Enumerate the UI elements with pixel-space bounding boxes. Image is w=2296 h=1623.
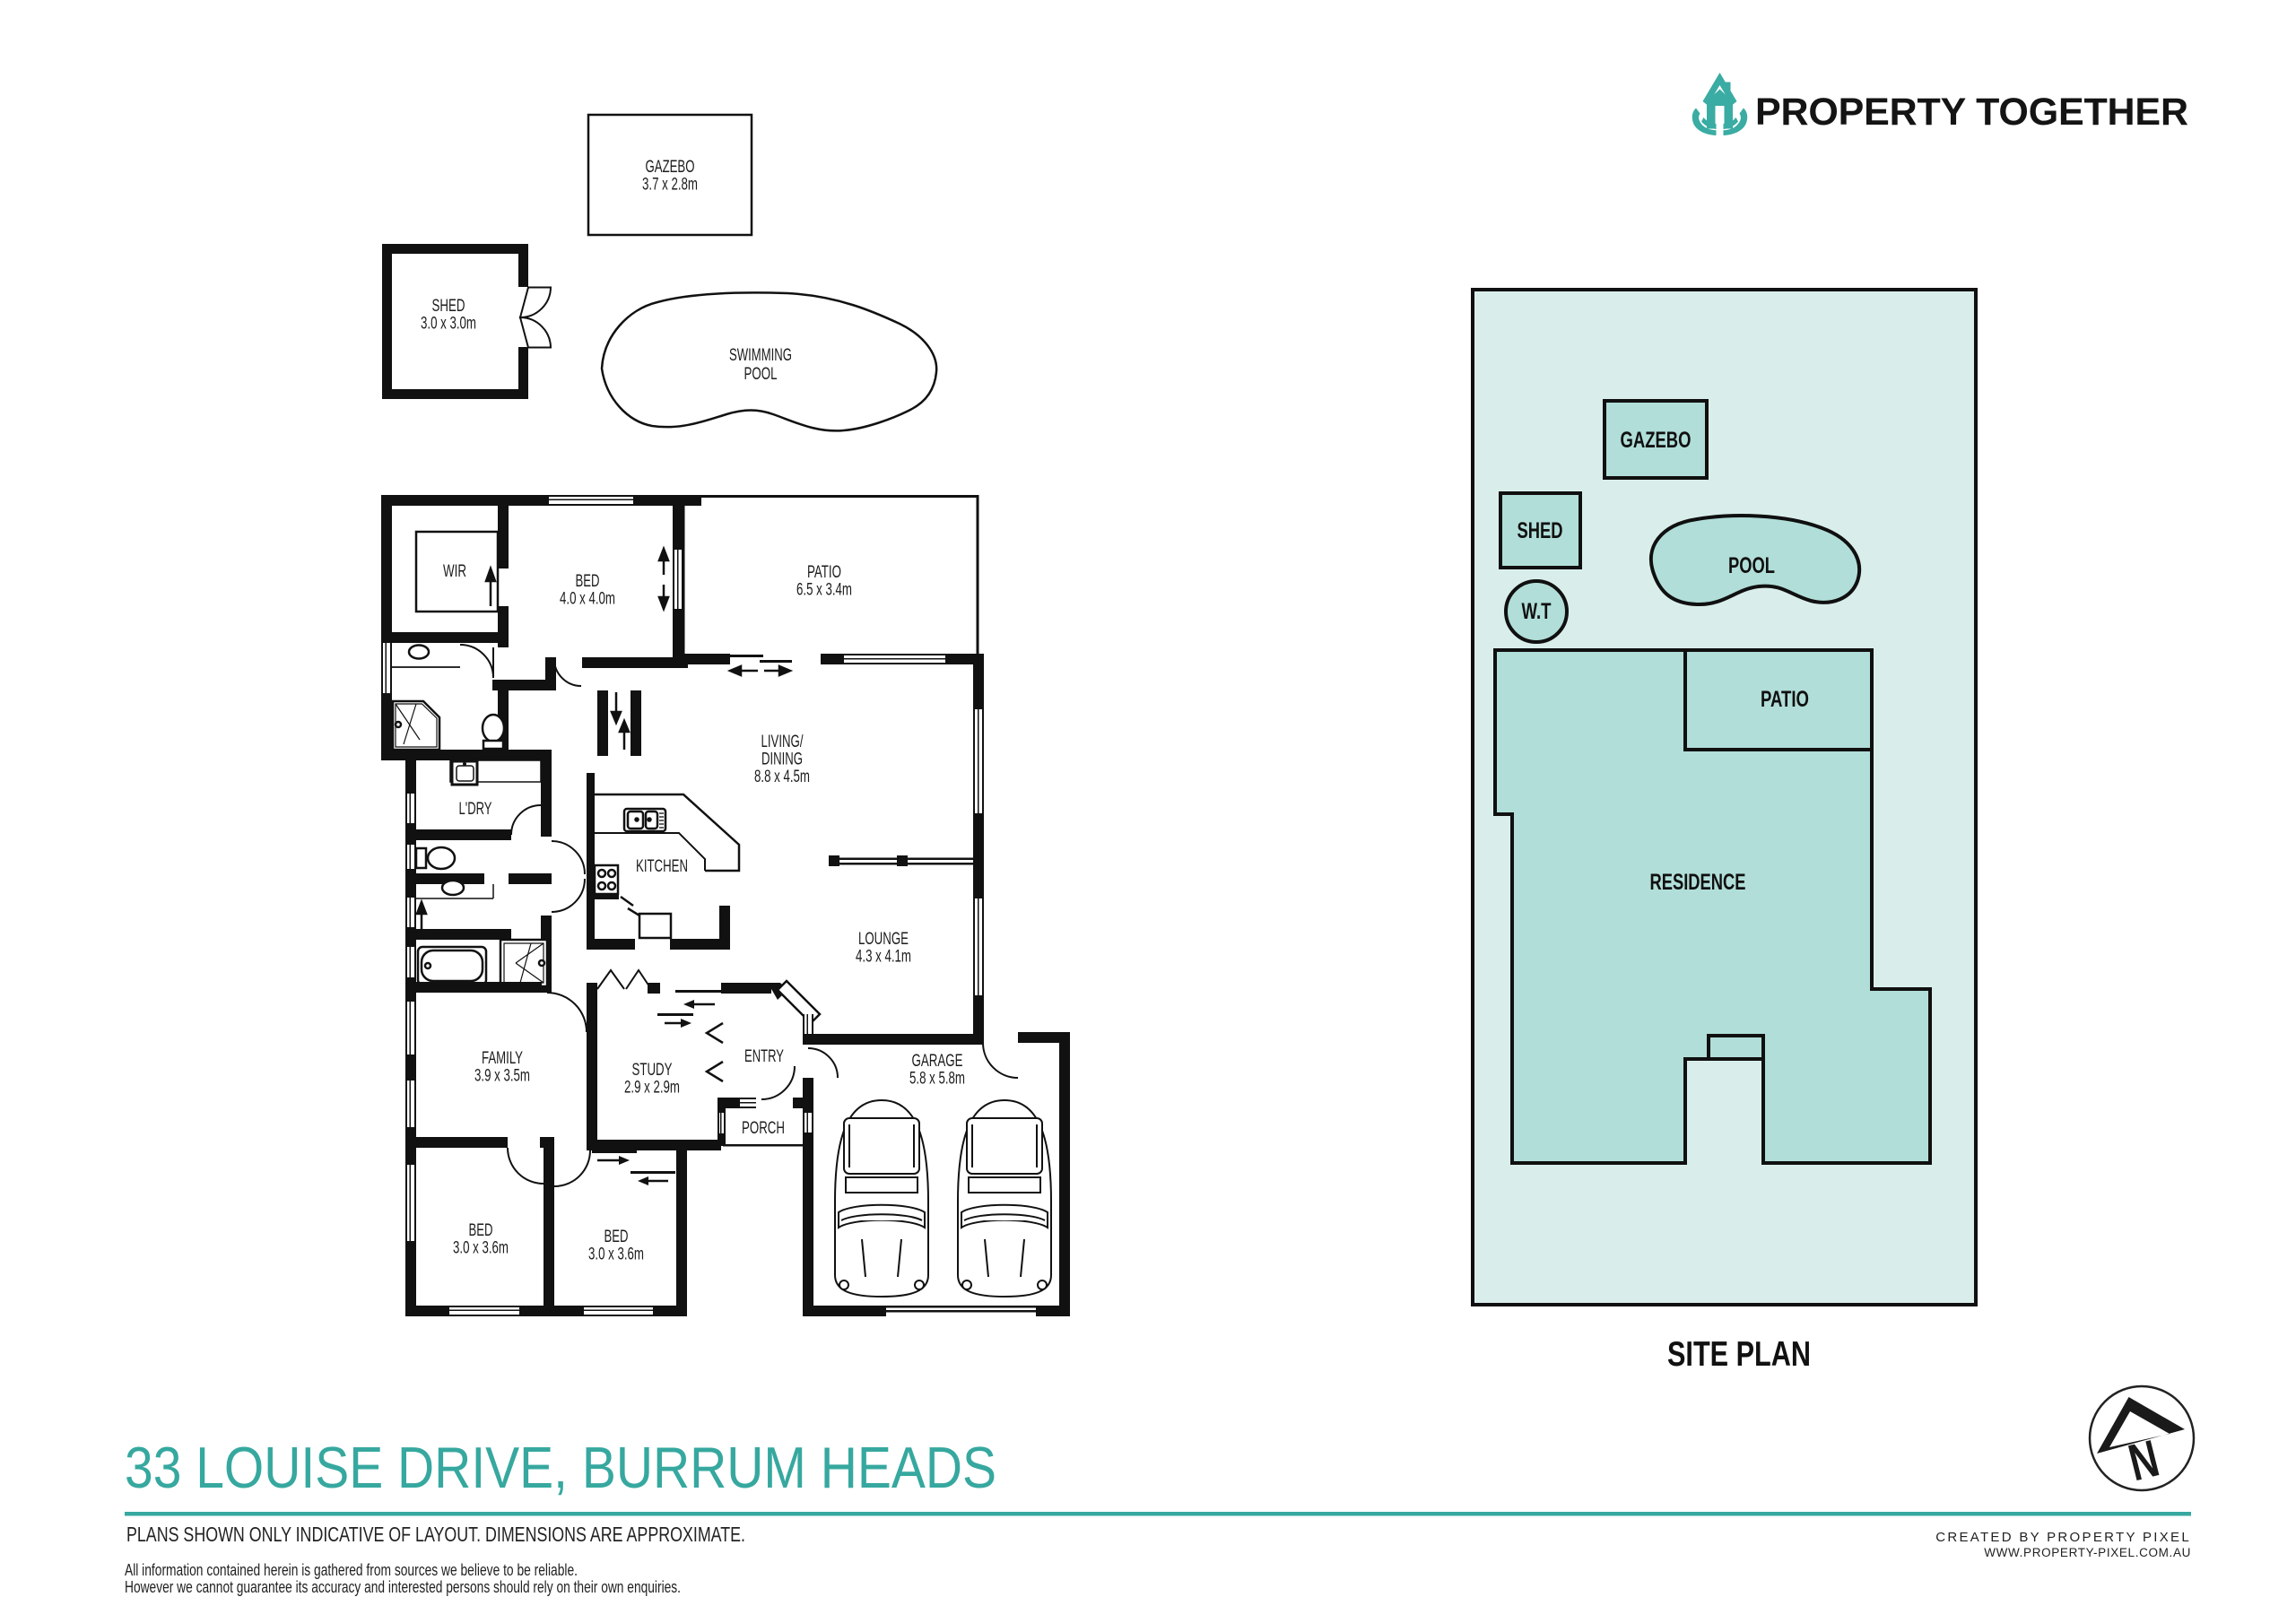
svg-text:PATIO: PATIO (807, 563, 841, 582)
svg-text:3.9 x 3.5m: 3.9 x 3.5m (474, 1067, 530, 1086)
svg-text:L'DRY: L'DRY (459, 800, 492, 819)
svg-text:BED: BED (469, 1221, 493, 1240)
svg-text:33 LOUISE DRIVE, BURRUM HEADS: 33 LOUISE DRIVE, BURRUM HEADS (125, 1435, 996, 1500)
svg-text:GARAGE: GARAGE (912, 1052, 963, 1071)
svg-text:LIVING/: LIVING/ (761, 733, 804, 751)
svg-text:WWW.PROPERTY-PIXEL.COM.AU: WWW.PROPERTY-PIXEL.COM.AU (1984, 1546, 2191, 1559)
svg-text:BED: BED (576, 572, 600, 591)
svg-text:3.7 x 2.8m: 3.7 x 2.8m (642, 176, 698, 195)
svg-text:2.9 x 2.9m: 2.9 x 2.9m (624, 1079, 680, 1098)
svg-text:SWIMMING: SWIMMING (729, 346, 792, 365)
svg-text:SHED: SHED (1518, 518, 1563, 543)
svg-text:RESIDENCE: RESIDENCE (1650, 870, 1746, 895)
svg-text:All information contained here: All information contained herein is gath… (125, 1561, 578, 1579)
svg-text:ENTRY: ENTRY (744, 1047, 784, 1066)
svg-text:KITCHEN: KITCHEN (636, 857, 688, 876)
svg-text:GAZEBO: GAZEBO (646, 158, 695, 177)
svg-text:4.3 x 4.1m: 4.3 x 4.1m (856, 948, 911, 967)
svg-text:SHED: SHED (432, 297, 465, 316)
svg-text:POOL: POOL (744, 365, 778, 384)
svg-text:3.0 x 3.6m: 3.0 x 3.6m (588, 1245, 644, 1264)
svg-text:W.T: W.T (1522, 599, 1552, 624)
svg-text:CREATED BY PROPERTY PIXEL: CREATED BY PROPERTY PIXEL (1935, 1530, 2191, 1545)
svg-text:DINING: DINING (761, 751, 803, 769)
svg-text:WIR: WIR (443, 562, 466, 581)
svg-text:4.0 x 4.0m: 4.0 x 4.0m (560, 590, 615, 609)
svg-text:8.8 x 4.5m: 8.8 x 4.5m (754, 768, 810, 786)
svg-text:6.5 x 3.4m: 6.5 x 3.4m (796, 581, 852, 600)
svg-text:POOL: POOL (1728, 553, 1775, 578)
svg-text:LOUNGE: LOUNGE (858, 930, 909, 949)
svg-text:GAZEBO: GAZEBO (1621, 428, 1692, 453)
svg-text:BED: BED (604, 1228, 629, 1246)
svg-text:STUDY: STUDY (632, 1061, 673, 1080)
svg-text:PORCH: PORCH (742, 1119, 785, 1138)
svg-text:PROPERTY TOGETHER: PROPERTY TOGETHER (1755, 91, 2188, 134)
svg-text:5.8 x 5.8m: 5.8 x 5.8m (909, 1070, 965, 1089)
svg-text:SITE PLAN: SITE PLAN (1667, 1335, 1811, 1374)
svg-text:3.0 x 3.0m: 3.0 x 3.0m (421, 315, 476, 334)
svg-text:3.0 x 3.6m: 3.0 x 3.6m (453, 1239, 509, 1258)
svg-text:However we cannot guarantee it: However we cannot guarantee its accuracy… (125, 1578, 681, 1596)
svg-text:PATIO: PATIO (1761, 687, 1809, 712)
svg-text:PLANS SHOWN ONLY INDICATIVE OF: PLANS SHOWN ONLY INDICATIVE OF LAYOUT. D… (126, 1523, 745, 1546)
svg-text:FAMILY: FAMILY (482, 1049, 523, 1068)
